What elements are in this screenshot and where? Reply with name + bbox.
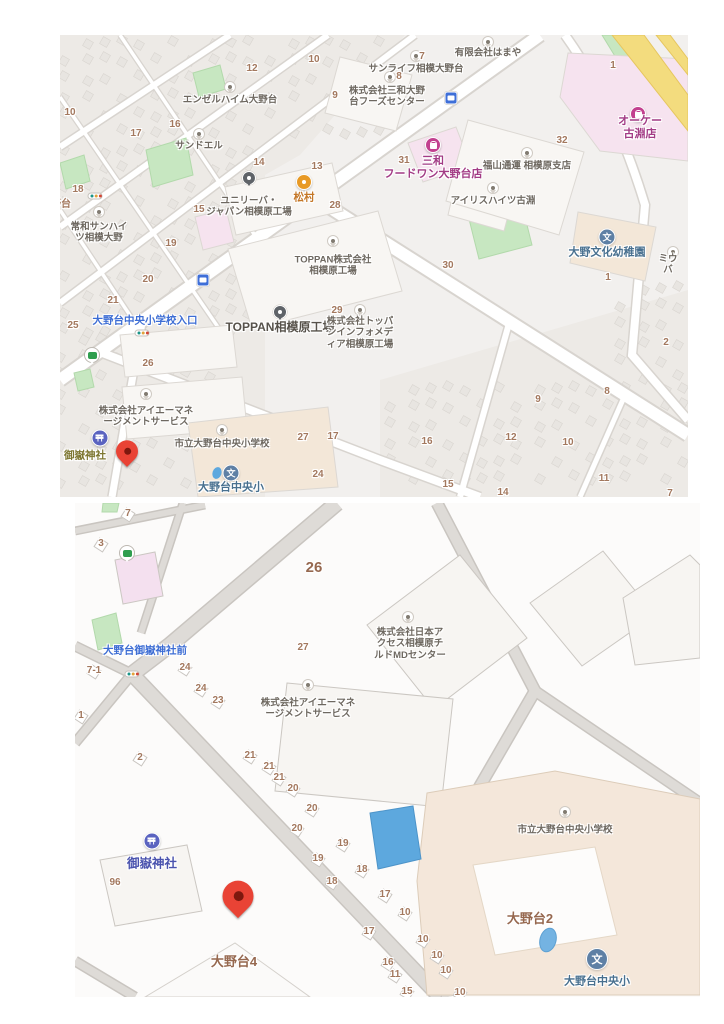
block-number: 20 xyxy=(287,783,298,795)
block-number: 24 xyxy=(195,683,206,695)
block-number: 24 xyxy=(179,662,190,674)
map-label[interactable]: ユニリーバ・ ジャパン相模原工場 xyxy=(206,196,292,219)
block-number: 10 xyxy=(562,437,573,449)
block-number: 10 xyxy=(308,54,319,66)
generic-pin-icon[interactable] xyxy=(482,36,494,48)
block-number: 10 xyxy=(417,934,428,946)
generic-pin-icon[interactable] xyxy=(559,806,571,818)
map-label[interactable]: 株式会社アイエーマネ ージメントサービス xyxy=(261,698,355,721)
map-label[interactable]: 株式会社三和大野 台フーズセンター xyxy=(349,86,425,109)
block-number: 26 xyxy=(306,559,323,577)
block-number: 18 xyxy=(326,876,337,888)
orange-pin-icon[interactable] xyxy=(296,174,312,190)
block-number: 17 xyxy=(363,926,374,938)
map-label[interactable]: 市立大野台中央小学校 xyxy=(517,824,612,835)
map-label[interactable]: 福山通運 相模原支店 xyxy=(483,160,571,171)
map-canvas xyxy=(75,503,700,997)
block-number: 20 xyxy=(291,823,302,835)
block-number: 16 xyxy=(382,957,393,969)
generic-pin-icon[interactable] xyxy=(216,424,228,436)
block-number: 18 xyxy=(356,864,367,876)
block-number: 7 xyxy=(125,508,131,520)
district-label: 大野台4 xyxy=(211,954,257,970)
block-number: 14 xyxy=(497,487,508,497)
map-label[interactable]: 大野台御嶽神社前 xyxy=(103,645,187,658)
school-pin-icon[interactable] xyxy=(586,948,608,970)
map-label[interactable]: 松村 xyxy=(294,192,315,205)
block-number: 13 xyxy=(311,161,322,173)
block-number: 11 xyxy=(390,969,401,981)
block-number: 15 xyxy=(401,986,412,997)
block-number: 21 xyxy=(107,295,118,307)
block-number: 16 xyxy=(169,119,180,131)
block-number: 25 xyxy=(67,320,78,332)
map-label[interactable]: 御嶽神社 xyxy=(64,450,106,463)
generic-pin-icon[interactable] xyxy=(224,81,236,93)
block-number: 21 xyxy=(273,772,284,784)
block-number: 17 xyxy=(130,128,141,140)
block-number: 大野台 xyxy=(60,199,71,211)
block-number: 28 xyxy=(329,200,340,212)
block-number: 10 xyxy=(440,965,451,977)
map-label[interactable]: 大野台中央小学校入口 xyxy=(93,315,198,328)
block-number: 10 xyxy=(454,987,465,997)
dark-pin-icon[interactable] xyxy=(242,171,256,185)
block-number: 30 xyxy=(442,260,453,272)
generic-pin-icon[interactable] xyxy=(521,147,533,159)
map-label[interactable]: 常和サンハイ ツ相模大野 xyxy=(71,222,128,245)
block-number: 18 xyxy=(72,184,83,196)
block-number: 96 xyxy=(109,877,120,889)
map-label[interactable]: サンライフ相模大野台 xyxy=(368,63,463,74)
block-number: 11 xyxy=(599,473,610,485)
traffic-pin-icon xyxy=(125,671,140,678)
shopping-pin-icon[interactable] xyxy=(425,137,441,153)
block-number: 10 xyxy=(431,950,442,962)
block-number: 19 xyxy=(337,838,348,850)
shrine-pin-icon[interactable] xyxy=(92,430,109,447)
generic-pin-icon[interactable] xyxy=(93,206,105,218)
map-label[interactable]: 御嶽神社 xyxy=(127,857,177,872)
block-number: 1 xyxy=(78,710,84,722)
block-number: 12 xyxy=(505,432,516,444)
block-number: 15 xyxy=(442,479,453,491)
block-number: 20 xyxy=(306,803,317,815)
traffic-pin-icon xyxy=(135,330,150,337)
block-number: 1 xyxy=(605,272,611,284)
map-label[interactable]: TOPPAN相模原工場 xyxy=(226,320,335,334)
block-number: 7-1 xyxy=(87,665,101,677)
map-top[interactable]: エンゼルハイム大野台サンドエル有限会社はまやサンライフ相模大野台株式会社三和大野… xyxy=(60,35,688,497)
shrine-pin-icon[interactable] xyxy=(144,833,161,850)
block-number: 17 xyxy=(379,889,390,901)
map-label[interactable]: 株式会社日本ア クセス相模原チ ルドMDセンター xyxy=(374,627,446,661)
map-label[interactable]: ミウバ xyxy=(658,254,678,277)
block-number: 16 xyxy=(421,436,432,448)
bus-blue-pin-icon[interactable] xyxy=(445,92,458,105)
block-number: 17 xyxy=(327,431,338,443)
block-number: 31 xyxy=(398,155,409,167)
block-number: 8 xyxy=(396,71,402,83)
map-label[interactable]: サンドエル xyxy=(175,140,223,151)
bus-green-pin-icon[interactable] xyxy=(84,347,100,363)
block-number: 27 xyxy=(297,642,308,654)
generic-pin-icon[interactable] xyxy=(354,304,366,316)
block-number: 23 xyxy=(212,695,223,707)
block-number: 29 xyxy=(331,305,342,317)
block-number: 15 xyxy=(193,204,204,216)
block-number: 27 xyxy=(297,432,308,444)
block-number: 32 xyxy=(556,135,567,147)
map-label[interactable]: 大野台中央小 xyxy=(564,975,630,988)
block-number: 21 xyxy=(244,750,255,762)
map-label[interactable]: オーケー 古淵店 xyxy=(616,115,664,141)
block-number: 26 xyxy=(142,358,153,370)
dark-pin-icon[interactable] xyxy=(273,305,287,319)
block-number: 19 xyxy=(312,853,323,865)
map-label[interactable]: 株式会社トッパ ンインフォメデ ィア相模原工場 xyxy=(327,316,394,350)
generic-pin-icon[interactable] xyxy=(302,679,314,691)
generic-pin-icon[interactable] xyxy=(327,235,339,247)
block-number: 8 xyxy=(604,386,610,398)
block-number: 20 xyxy=(142,274,153,286)
generic-pin-icon[interactable] xyxy=(193,128,205,140)
map-label[interactable]: 有限会社はまや xyxy=(455,47,522,58)
bus-green-pin-icon[interactable] xyxy=(119,545,135,561)
block-number: 12 xyxy=(246,63,257,75)
map-label[interactable]: アイリスハイツ古淵 xyxy=(451,195,536,206)
map-bottom[interactable]: 大野台御嶽神社前2627株式会社日本ア クセス相模原チ ルドMDセンター株式会社… xyxy=(75,503,700,997)
block-number: 1 xyxy=(610,60,616,72)
district-label: 大野台2 xyxy=(507,911,553,927)
map-label[interactable]: エンゼルハイム大野台 xyxy=(183,94,278,105)
block-number: 9 xyxy=(535,394,541,406)
school-pin-icon[interactable] xyxy=(223,465,240,482)
map-label[interactable]: 大野文化幼稚園 xyxy=(569,246,646,259)
generic-pin-icon[interactable] xyxy=(140,388,152,400)
map-label[interactable]: 株式会社アイエーマネ ージメントサービス xyxy=(99,406,193,429)
block-number: 2 xyxy=(663,337,669,349)
block-number: 14 xyxy=(253,157,264,169)
traffic-pin-icon xyxy=(88,193,103,200)
map-label[interactable]: 市立大野台中央小学校 xyxy=(174,438,269,449)
block-number: 9 xyxy=(332,90,338,102)
block-number: 19 xyxy=(165,238,176,250)
block-number: 3 xyxy=(98,538,104,550)
school-pin-icon[interactable] xyxy=(599,229,616,246)
map-label[interactable]: TOPPAN株式会社 相模原工場 xyxy=(295,255,372,278)
block-number: 2 xyxy=(137,752,143,764)
page: { "colors": { "map_bg_top": "#f2f0ee", "… xyxy=(0,0,724,1024)
block-number: 7 xyxy=(667,488,673,497)
block-number: 24 xyxy=(312,469,323,481)
generic-pin-icon[interactable] xyxy=(402,611,414,623)
block-number: 7 xyxy=(419,51,425,63)
map-label[interactable]: 大野台中央小 xyxy=(198,481,264,494)
block-number: 10 xyxy=(399,907,410,919)
generic-pin-icon[interactable] xyxy=(487,182,499,194)
bus-blue-pin-icon[interactable] xyxy=(197,274,210,287)
block-number: 10 xyxy=(64,107,75,119)
